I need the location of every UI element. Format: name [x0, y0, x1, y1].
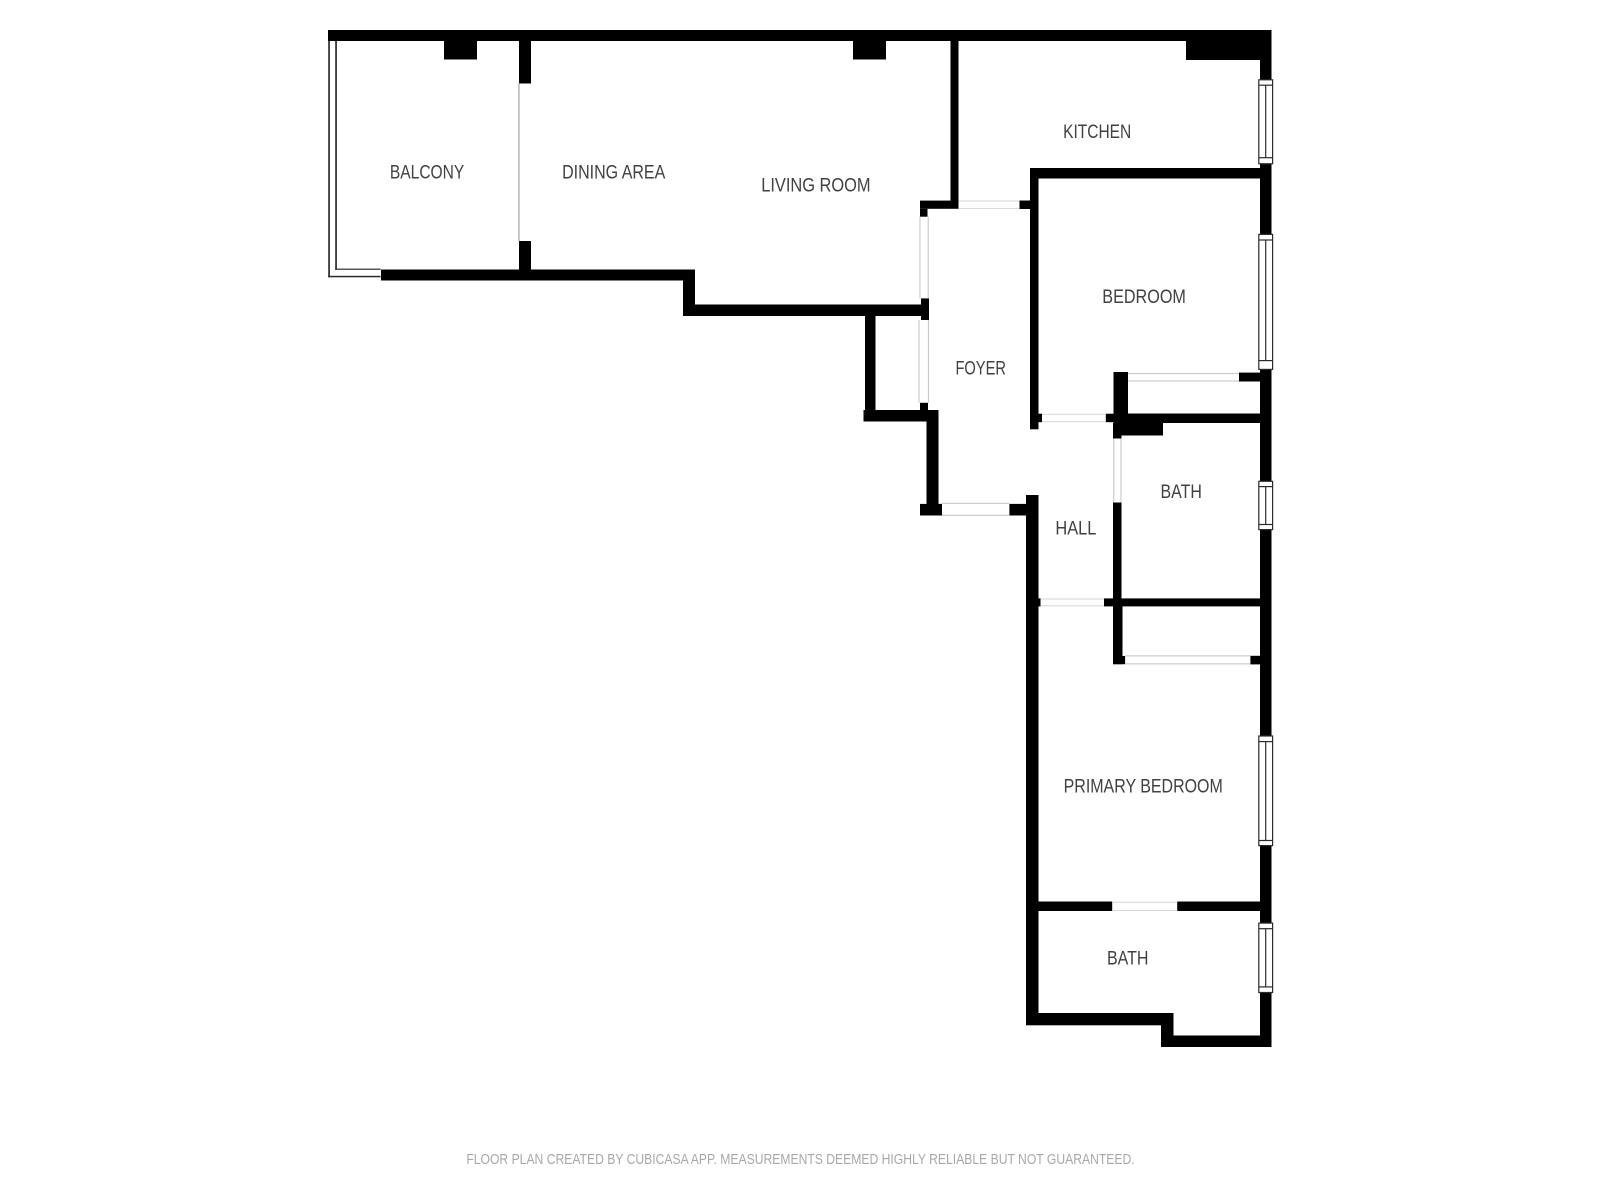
svg-text:DINING AREA: DINING AREA	[562, 163, 665, 184]
svg-text:FLOOR PLAN CREATED BY CUBICASA: FLOOR PLAN CREATED BY CUBICASA APP. MEAS…	[466, 1152, 1134, 1168]
svg-text:BALCONY: BALCONY	[390, 163, 465, 184]
svg-text:KITCHEN: KITCHEN	[1063, 122, 1131, 143]
svg-text:BATH: BATH	[1161, 482, 1202, 503]
svg-text:HALL: HALL	[1055, 519, 1096, 540]
svg-text:FOYER: FOYER	[955, 358, 1006, 379]
svg-text:BATH: BATH	[1107, 949, 1149, 970]
svg-text:LIVING ROOM: LIVING ROOM	[761, 175, 870, 196]
svg-text:BEDROOM: BEDROOM	[1102, 287, 1186, 308]
svg-text:PRIMARY BEDROOM: PRIMARY BEDROOM	[1064, 777, 1223, 798]
